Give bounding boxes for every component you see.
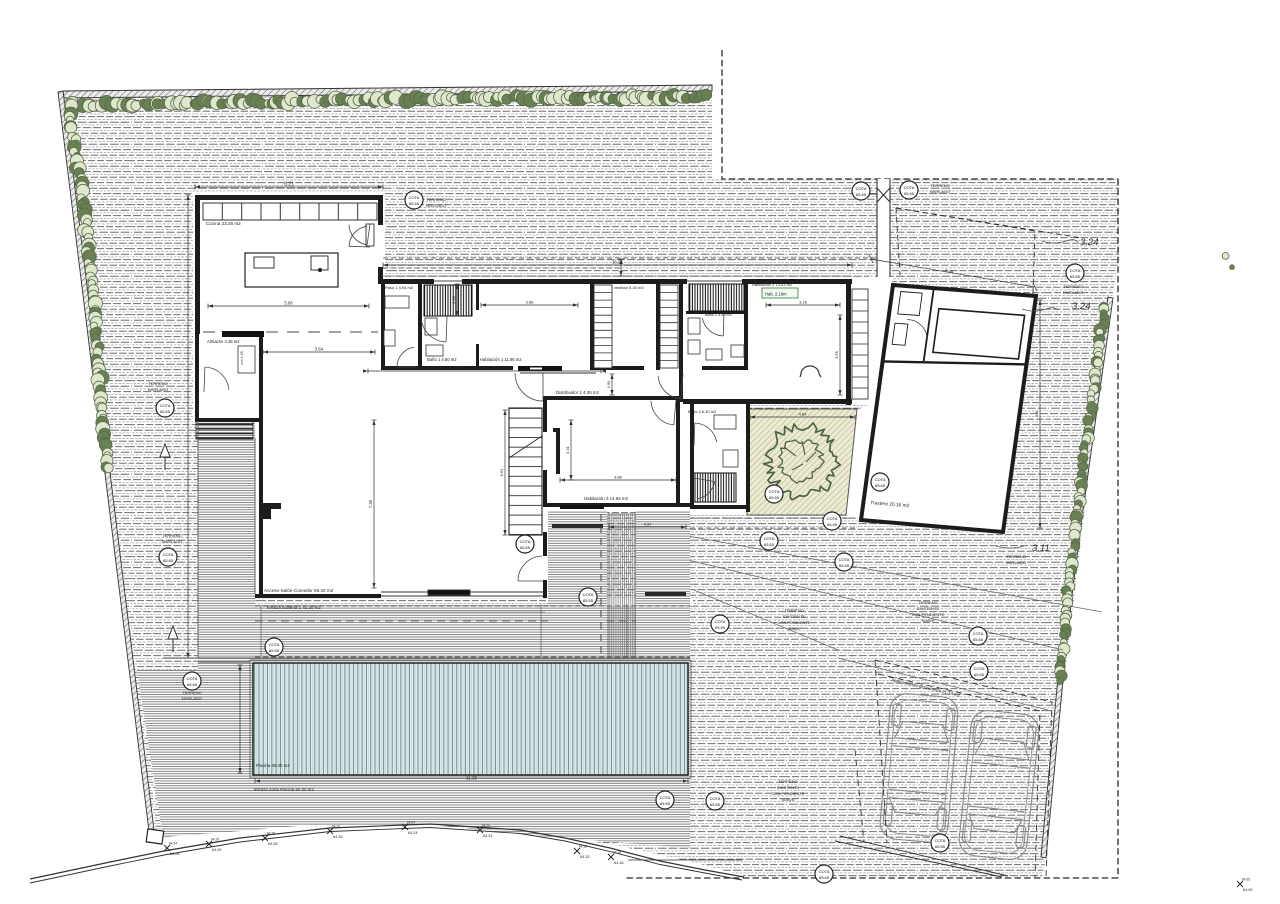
- svg-text:COTA: COTA: [769, 489, 780, 494]
- svg-text:TERRENO: TERRENO: [162, 533, 182, 538]
- svg-text:TERRENO: TERRENO: [182, 690, 202, 695]
- svg-text:5.08: 5.08: [284, 301, 293, 306]
- svg-text:65.65: 65.65: [819, 875, 830, 880]
- svg-text:COTA: COTA: [715, 619, 726, 624]
- svg-text:NIVELADO: NIVELADO: [930, 189, 950, 194]
- svg-text:65.65: 65.65: [409, 201, 420, 206]
- svg-text:65.65: 65.65: [904, 191, 915, 196]
- svg-text:COTA: COTA: [520, 539, 531, 544]
- svg-text:65.65: 65.65: [583, 598, 594, 603]
- svg-text:0.90: 0.90: [607, 381, 611, 388]
- svg-text:Piscina 49.00 m2: Piscina 49.00 m2: [256, 763, 290, 768]
- svg-text:TERRENO: TERRENO: [784, 608, 804, 613]
- svg-text:Paso 1 4.94 m2: Paso 1 4.94 m2: [385, 285, 414, 290]
- svg-text:65.65: 65.65: [520, 545, 531, 550]
- svg-text:64.24: 64.24: [408, 831, 418, 835]
- svg-text:TERRENO: TERRENO: [778, 779, 798, 784]
- svg-text:min 1.65: min 1.65: [240, 351, 244, 365]
- svg-text:65.65: 65.65: [973, 637, 984, 642]
- svg-text:COTA: COTA: [973, 631, 984, 636]
- svg-text:COTA: COTA: [187, 676, 198, 681]
- svg-text:Distribuidor 1 4.35 m2: Distribuidor 1 4.35 m2: [556, 390, 600, 395]
- svg-text:4.37: 4.37: [644, 522, 653, 527]
- svg-text:TERRENO: TERRENO: [930, 183, 950, 188]
- svg-text:64.28: 64.28: [268, 842, 278, 846]
- svg-text:TERRENO: TERRENO: [426, 197, 446, 202]
- svg-text:COTA: COTA: [827, 516, 838, 521]
- svg-text:NIVELADO: NIVELADO: [148, 387, 168, 392]
- svg-text:65.65: 65.65: [827, 522, 838, 527]
- svg-text:NIVELADO: NIVELADO: [162, 539, 182, 544]
- svg-text:NIVELADO: NIVELADO: [426, 203, 446, 208]
- svg-text:3.88: 3.88: [614, 475, 623, 480]
- svg-text:64.26: 64.26: [332, 825, 340, 829]
- svg-text:64.33: 64.33: [580, 855, 590, 859]
- svg-text:COTA: COTA: [269, 642, 280, 647]
- svg-text:64.24: 64.24: [170, 852, 180, 856]
- svg-text:65.65: 65.65: [160, 409, 171, 414]
- svg-text:2.98: 2.98: [452, 296, 456, 303]
- svg-text:65.65: 65.65: [769, 495, 780, 500]
- svg-text:3.18: 3.18: [799, 300, 808, 305]
- svg-text:3.64: 3.64: [315, 347, 324, 352]
- svg-text:64.18: 64.18: [613, 851, 621, 855]
- svg-text:COTA: COTA: [904, 185, 915, 190]
- svg-text:3.11: 3.11: [1032, 543, 1050, 554]
- svg-text:65.65: 65.65: [715, 625, 726, 630]
- svg-text:Acceso-Salón-Comedor 66.40 m2: Acceso-Salón-Comedor 66.40 m2: [264, 588, 334, 593]
- svg-text:NIVELADO: NIVELADO: [1006, 560, 1026, 565]
- svg-text:65.65: 65.65: [187, 682, 198, 687]
- svg-text:CON PENDIENTE: CON PENDIENTE: [912, 612, 945, 617]
- svg-text:COTA: COTA: [974, 666, 985, 671]
- svg-text:Baño 1 4.60 m2: Baño 1 4.60 m2: [427, 357, 457, 362]
- svg-text:NIVELADO: NIVELADO: [1063, 290, 1083, 295]
- svg-text:65.65: 65.65: [856, 192, 867, 197]
- svg-text:TERRENO: TERRENO: [1006, 554, 1026, 559]
- svg-text:Baño 2 3.50 m2: Baño 2 3.50 m2: [705, 313, 732, 317]
- svg-text:TERRENO: TERRENO: [918, 600, 938, 605]
- svg-text:Cocina 23.25 m2: Cocina 23.25 m2: [206, 221, 241, 226]
- svg-text:5.6: 5.6: [1034, 410, 1039, 416]
- svg-text:CON PENDIENTE: CON PENDIENTE: [778, 620, 811, 625]
- svg-text:Habitación 1 11.95 m2: Habitación 1 11.95 m2: [480, 357, 522, 362]
- svg-text:64.18: 64.18: [614, 861, 624, 865]
- svg-text:7.36: 7.36: [368, 499, 373, 508]
- svg-text:COTA: COTA: [160, 403, 171, 408]
- svg-text:65.65: 65.65: [269, 648, 280, 653]
- svg-text:COTA: COTA: [856, 186, 867, 191]
- svg-text:EXISTENTE: EXISTENTE: [783, 614, 806, 619]
- svg-text:CON PENDIENTE: CON PENDIENTE: [772, 791, 805, 796]
- svg-text:65.65: 65.65: [974, 672, 985, 677]
- svg-text:Hab. 2.18m: Hab. 2.18m: [765, 292, 787, 297]
- svg-text:6.21: 6.21: [284, 182, 294, 188]
- svg-text:6.61: 6.61: [499, 468, 504, 477]
- svg-text:vestidor 5.40 m2: vestidor 5.40 m2: [614, 285, 644, 290]
- svg-text:65.65: 65.65: [935, 844, 946, 849]
- svg-text:Baño 3 6.30 m2: Baño 3 6.30 m2: [688, 409, 717, 414]
- svg-text:EXISTENTE: EXISTENTE: [917, 606, 940, 611]
- svg-text:64.29: 64.29: [212, 848, 222, 852]
- svg-text:64.28: 64.28: [267, 832, 275, 836]
- svg-text:SUAVE: SUAVE: [787, 626, 801, 631]
- svg-text:65.65: 65.65: [1070, 274, 1081, 279]
- svg-text:COTA: COTA: [660, 795, 671, 800]
- svg-text:COTA: COTA: [839, 557, 850, 562]
- svg-text:EXISTENTE: EXISTENTE: [777, 785, 800, 790]
- svg-text:Habitación 3 14.93 m2: Habitación 3 14.93 m2: [584, 496, 628, 501]
- svg-text:65.65: 65.65: [764, 542, 775, 547]
- svg-text:64.05: 64.05: [1243, 888, 1253, 892]
- svg-text:64.29: 64.29: [211, 838, 219, 842]
- svg-text:3.24: 3.24: [1080, 237, 1099, 248]
- svg-text:65.65: 65.65: [660, 801, 671, 806]
- svg-text:COTA: COTA: [163, 552, 174, 557]
- svg-text:COTA: COTA: [935, 838, 946, 843]
- svg-text:64.24: 64.24: [169, 842, 177, 846]
- svg-text:COTA: COTA: [875, 477, 886, 482]
- svg-text:1.85: 1.85: [481, 367, 488, 371]
- svg-text:COTA: COTA: [819, 869, 830, 874]
- svg-text:TERRENO: TERRENO: [148, 381, 168, 386]
- svg-text:Habitación 2 13.51 m2: Habitación 2 13.51 m2: [752, 282, 793, 287]
- svg-text:TERRENO: TERRENO: [1063, 284, 1083, 289]
- svg-text:Almacén 4.35 m2: Almacén 4.35 m2: [207, 339, 240, 344]
- svg-text:SUAVE: SUAVE: [921, 618, 935, 623]
- svg-text:65.65: 65.65: [710, 802, 721, 807]
- svg-text:64.05: 64.05: [1242, 878, 1250, 882]
- svg-text:COTA: COTA: [1070, 268, 1081, 273]
- svg-text:3.86: 3.86: [526, 300, 535, 305]
- svg-text:COTA: COTA: [764, 536, 775, 541]
- svg-text:COTA: COTA: [710, 796, 721, 801]
- svg-text:11.36: 11.36: [466, 776, 477, 781]
- svg-text:3.65: 3.65: [834, 350, 839, 359]
- svg-text:3.24: 3.24: [1072, 301, 1091, 312]
- svg-text:65.65: 65.65: [163, 558, 174, 563]
- svg-text:64.24: 64.24: [483, 834, 493, 838]
- svg-text:4.64: 4.64: [799, 412, 808, 417]
- svg-text:64.24: 64.24: [407, 821, 415, 825]
- svg-text:64.24: 64.24: [482, 824, 490, 828]
- svg-text:65.65: 65.65: [839, 563, 850, 568]
- svg-text:SUAVE: SUAVE: [781, 797, 795, 802]
- svg-text:Terraza Zona Piscina 84.00 m2: Terraza Zona Piscina 84.00 m2: [253, 787, 314, 792]
- svg-text:COTA: COTA: [409, 195, 420, 200]
- svg-text:Terraza cubierta 1 41.30 m2: Terraza cubierta 1 41.30 m2: [266, 605, 321, 610]
- svg-text:3.31: 3.31: [565, 445, 570, 454]
- svg-text:NIVELADO: NIVELADO: [182, 696, 202, 701]
- svg-text:64.33: 64.33: [579, 845, 587, 849]
- svg-text:65.65: 65.65: [875, 483, 886, 488]
- svg-text:COTA: COTA: [583, 592, 594, 597]
- svg-text:64.26: 64.26: [333, 835, 343, 839]
